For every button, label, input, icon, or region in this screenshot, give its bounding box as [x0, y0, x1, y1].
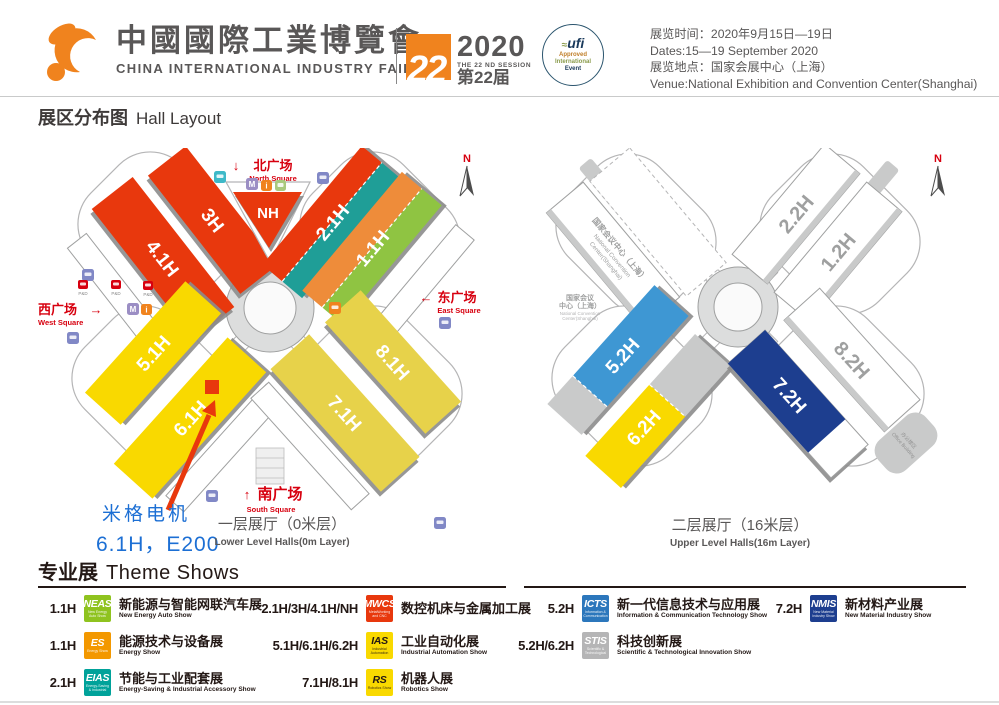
theme-show-halls: 1.1H: [40, 638, 76, 653]
compass-n-label: N: [463, 153, 471, 165]
theme-show-name-zh: 能源技术与设备展: [119, 634, 223, 649]
compass: N: [931, 153, 945, 196]
event-time-zh: 展览时间：2020年9月15日—19日: [650, 26, 977, 43]
theme-show-item: 5.1H/6.1H/6.2H IASIndustrial Automation …: [250, 631, 531, 659]
south-square-label-en: South Square: [247, 505, 296, 514]
theme-shows-column-2: 2.1H/3H/4.1H/NH MWCSMetalWorking and CNC…: [250, 594, 531, 696]
east-square-arrow: ←: [420, 290, 433, 305]
svg-text:i: i: [145, 306, 147, 315]
convention-side-label: 国家会议 中心（上海） National Convention Center(S…: [559, 293, 601, 321]
taxi-icon: [329, 302, 341, 314]
section-title: 展区分布图 Hall Layout: [38, 104, 221, 130]
svg-text:Center(Shanghai): Center(Shanghai): [562, 316, 598, 321]
event-venue-en: Venue:National Exhibition and Convention…: [650, 76, 977, 93]
theme-show-item: 5.2H ICTSInformation & Communication Tec…: [508, 594, 767, 622]
theme-shows-rule-right: [524, 586, 966, 588]
rs-logo: RSRobotics Show: [366, 669, 393, 696]
theme-shows-column-4: 7.2H NMISNew Material Industry Show 新材料产…: [768, 594, 931, 622]
pd-label: P&D: [111, 291, 121, 296]
booth-marker: [205, 380, 219, 394]
header-rule: [0, 96, 999, 97]
theme-show-name-en: Robotics Show: [401, 686, 453, 694]
logo-e: [74, 45, 92, 63]
theme-show-name-en: New Material Industry Show: [845, 612, 931, 620]
booth-company: 米格电机: [102, 503, 190, 525]
session-badge-text: 2020 THE 22 ND SESSION 第22届: [457, 34, 531, 87]
brand-title-en: CHINA INTERNATIONAL INDUSTRY FAIR: [116, 61, 422, 76]
upper-map-caption-en: Upper Level Halls(16m Layer): [670, 538, 810, 549]
pickup-dropoff-icon: [143, 281, 153, 290]
theme-show-halls: 2.1H/3H/4.1H/NH: [250, 601, 358, 616]
theme-show-name-zh: 工业自动化展: [401, 634, 487, 649]
session-badge: 22 2020 THE 22 ND SESSION 第22届: [406, 34, 531, 87]
booth-location: 6.1H，E200: [96, 533, 219, 556]
east-square-label-zh: 东广场: [437, 290, 476, 305]
theme-show-name-en: Information & Communication Technology S…: [617, 612, 767, 620]
session-label-zh: 第22届: [457, 69, 531, 87]
metro-icon: M: [127, 303, 139, 315]
pickup-dropoff-icon: [78, 280, 88, 289]
theme-show-name-zh: 科技创新展: [617, 634, 751, 649]
theme-show-item: 2.1H EIASEnergy-Saving & Industrial Acce…: [40, 668, 262, 696]
svg-text:中心（上海）: 中心（上海）: [559, 301, 601, 310]
header-divider: [396, 28, 397, 84]
bus-icon: [434, 517, 446, 529]
theme-show-halls: 5.2H/6.2H: [508, 638, 574, 653]
theme-show-halls: 1.1H: [40, 601, 76, 616]
theme-show-name-en: Scientific & Technological Innovation Sh…: [617, 649, 751, 657]
lower-map-caption-en: Lower Level Halls(0m Layer): [214, 537, 349, 548]
bus-icon: [67, 332, 79, 344]
ufi-badge: ≈ufi Approved International Event: [542, 24, 604, 86]
theme-show-halls: 7.2H: [768, 601, 802, 616]
theme-show-item: 7.2H NMISNew Material Industry Show 新材料产…: [768, 594, 931, 622]
pickup-dropoff-icon: [111, 280, 121, 289]
theme-show-item: 2.1H/3H/4.1H/NH MWCSMetalWorking and CNC…: [250, 594, 531, 622]
bus-icon: [317, 172, 329, 184]
event-venue-zh: 展览地点：国家会展中心（上海）: [650, 59, 977, 76]
theme-show-item: 1.1H NEASNew Energy Auto Show 新能源与智能网联汽车…: [40, 594, 262, 622]
theme-shows-rule-left: [38, 586, 506, 588]
ciif-logo: [36, 14, 114, 88]
theme-shows-column-1: 1.1H NEASNew Energy Auto Show 新能源与智能网联汽车…: [40, 594, 262, 696]
brand-title-zh: 中國國際工業博覽會: [116, 24, 422, 58]
north-square-label-zh: 北广场: [253, 158, 292, 173]
ciif-logo-mark: [45, 19, 96, 81]
pd-label: P&D: [78, 291, 88, 296]
bus-icon: [206, 490, 218, 502]
compass: N: [460, 153, 474, 196]
session-number: 22: [407, 51, 445, 89]
logo-gear: [47, 63, 65, 81]
ias-logo: IASIndustrial Automation Show: [366, 632, 393, 659]
theme-shows-title-en: Theme Shows: [106, 562, 239, 585]
theme-show-item: 7.1H/8.1H RSRobotics Show 机器人展Robotics S…: [250, 668, 531, 696]
theme-show-name-zh: 新材料产业展: [845, 597, 931, 612]
compass-needle: [938, 166, 945, 196]
ufi-line-international: International: [555, 59, 591, 66]
west-square-label-zh: 西广场: [38, 302, 77, 317]
theme-show-name-zh: 节能与工业配套展: [119, 671, 256, 686]
compass-needle-half: [460, 166, 467, 196]
section-title-en: Hall Layout: [136, 109, 221, 129]
restroom-icon: [275, 180, 286, 191]
es-logo: ESEnergy Show: [84, 632, 111, 659]
event-time-en: Dates:15—19 September 2020: [650, 43, 977, 60]
ufi-line-approved: Approved: [559, 52, 587, 59]
bus-icon: [439, 317, 451, 329]
compass-needle-half: [931, 166, 938, 196]
theme-show-halls: 7.1H/8.1H: [250, 675, 358, 690]
stis-logo: STISScientific & Technological Innovatio…: [582, 632, 609, 659]
page-bottom-rule: [0, 701, 999, 703]
bus-stop-icon: [214, 171, 226, 183]
ufi-logo: ≈ufi: [562, 37, 585, 52]
theme-show-name-en: New Energy Auto Show: [119, 612, 262, 620]
pd-label: P&D: [143, 292, 153, 297]
brand-titles: 中國國際工業博覽會 CHINA INTERNATIONAL INDUSTRY F…: [116, 24, 422, 76]
bus-icon: [82, 269, 94, 281]
theme-show-item: 1.1H ESEnergy Show 能源技术与设备展Energy Show: [40, 631, 262, 659]
eias-logo: EIASEnergy-Saving & Industrial Accessory…: [84, 669, 111, 696]
svg-text:M: M: [130, 305, 137, 314]
nmis-logo: NMISNew Material Industry Show: [810, 595, 837, 622]
theme-show-name-zh: 新一代信息技术与应用展: [617, 597, 767, 612]
hall-nh-label: NH: [257, 205, 279, 222]
theme-show-name-zh: 机器人展: [401, 671, 453, 686]
theme-show-item: 5.2H/6.2H STISScientific & Technological…: [508, 631, 767, 659]
north-square-arrow: ↓: [233, 158, 240, 173]
section-title-zh: 展区分布图: [38, 104, 128, 130]
icts-logo: ICTSInformation & Communication Technolo…: [582, 595, 609, 622]
info-icon: i: [261, 180, 272, 191]
west-square-label-en: West Square: [38, 318, 83, 327]
theme-show-name-en: Industrial Automation Show: [401, 649, 487, 657]
compass-n-label: N: [934, 153, 942, 165]
page: 中國國際工業博覽會 CHINA INTERNATIONAL INDUSTRY F…: [0, 0, 999, 705]
upper-map-caption-zh: 二层展厅（16米层）: [672, 517, 809, 534]
theme-show-halls: 2.1H: [40, 675, 76, 690]
theme-shows-column-3: 5.2H ICTSInformation & Communication Tec…: [508, 594, 767, 659]
theme-show-name-en: Energy-Saving & Industrial Accessory Sho…: [119, 686, 256, 694]
central-ring-hole: [244, 282, 296, 334]
compass-needle: [467, 166, 474, 196]
east-square-label-en: East Square: [437, 306, 480, 315]
south-stairs: [256, 448, 284, 484]
central-ring-hole: [714, 283, 762, 331]
theme-shows-title-zh: 专业展: [38, 556, 98, 585]
metro-icon: M: [246, 178, 258, 190]
theme-show-halls: 5.1H/6.1H/6.2H: [250, 638, 358, 653]
event-info: 展览时间：2020年9月15日—19日 Dates:15—19 Septembe…: [650, 26, 977, 92]
south-square-arrow: ↑: [244, 487, 251, 502]
theme-show-name-zh: 新能源与智能网联汽车展: [119, 597, 262, 612]
session-badge-box: 22: [406, 34, 451, 80]
west-square-arrow: →: [90, 302, 103, 317]
mwcs-logo: MWCSMetalWorking and CNC Machine Tool Sh…: [366, 595, 393, 622]
info-icon: i: [141, 304, 152, 315]
theme-show-halls: 5.2H: [508, 601, 574, 616]
neas-logo: NEASNew Energy Auto Show: [84, 595, 111, 622]
upper-level-map: 国家会议中心（上海） National Convention Center(Sh…: [518, 148, 988, 562]
south-square-label-zh: 南广场: [257, 485, 302, 503]
lower-level-map: 4.1H 3H NH 2.1H 1.1H: [30, 148, 510, 562]
session-year: 2020: [457, 34, 531, 61]
theme-show-name-en: Energy Show: [119, 649, 223, 657]
ufi-line-event: Event: [565, 66, 581, 73]
svg-text:国家会议: 国家会议: [566, 293, 595, 302]
svg-text:i: i: [265, 182, 267, 191]
lower-map-caption-zh: 一层展厅（0米层）: [218, 516, 346, 533]
theme-shows-title: 专业展 Theme Shows: [38, 556, 239, 585]
svg-text:M: M: [249, 180, 256, 189]
